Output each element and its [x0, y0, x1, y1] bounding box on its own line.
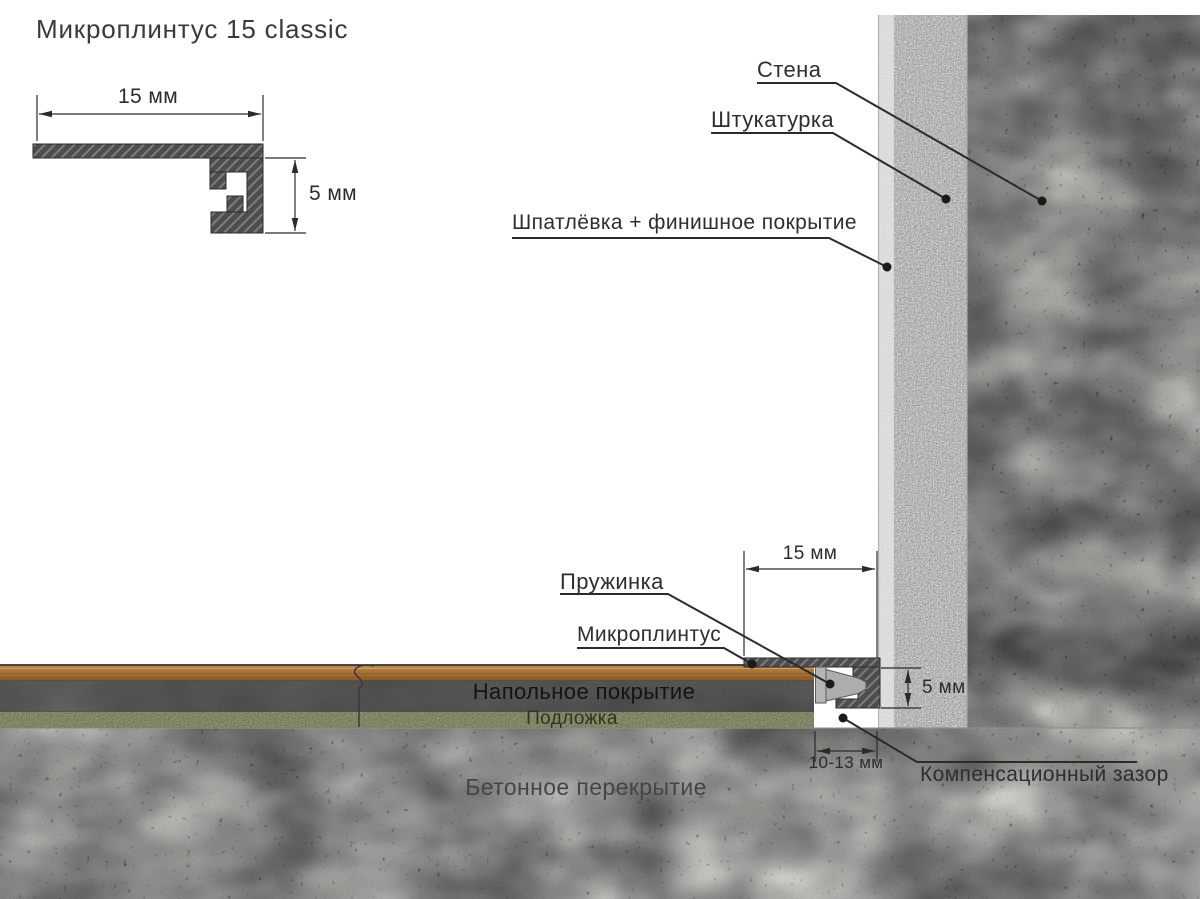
profile-drawing — [33, 144, 263, 233]
wall-section — [878, 15, 1200, 728]
diagram-page: Микроплинтус 15 classic 15 мм 5 мм Стена… — [0, 0, 1200, 899]
dim-label-5mm-drawing: 5 мм — [309, 183, 357, 205]
leader-skirting — [577, 648, 752, 664]
concrete-slab-label: Бетонное перекрытие — [465, 775, 707, 799]
dim-label-15mm-junction: 15 мм — [783, 544, 838, 564]
profile-flange — [33, 144, 263, 158]
skirting-flange-section — [744, 658, 880, 667]
leader-dot-skirting — [748, 660, 757, 669]
profile-top-lip — [210, 172, 226, 189]
page-title: Микроплинтус 15 classic — [36, 16, 348, 43]
plaster-label: Штукатурка — [711, 108, 834, 131]
dim-label-5mm-junction: 5 мм — [922, 678, 966, 698]
leader-dot-plaster — [942, 195, 951, 204]
concrete-slab — [0, 728, 1200, 899]
leader-dot-finish — [883, 263, 892, 272]
leader-dot-spring — [826, 680, 835, 689]
dim-label-gap-width: 10-13 мм — [809, 754, 884, 772]
floor-covering-label: Напольное покрытие — [473, 680, 695, 703]
underlay-label: Подложка — [526, 709, 618, 729]
skirting-label: Микроплинтус — [577, 624, 721, 646]
compensation-gap-label: Компенсационный зазор — [920, 764, 1169, 786]
leader-finish — [512, 238, 887, 267]
finish-coat-label: Шпатлёвка + финишное покрытие — [512, 212, 857, 234]
wall-label: Стена — [757, 58, 821, 81]
dim-label-15mm-drawing: 15 мм — [118, 86, 178, 108]
leader-dot-wall — [1038, 197, 1047, 206]
leader-dot-gap — [839, 714, 848, 723]
spring-label: Пружинка — [560, 570, 664, 593]
profile-bottom-lip — [227, 196, 243, 212]
